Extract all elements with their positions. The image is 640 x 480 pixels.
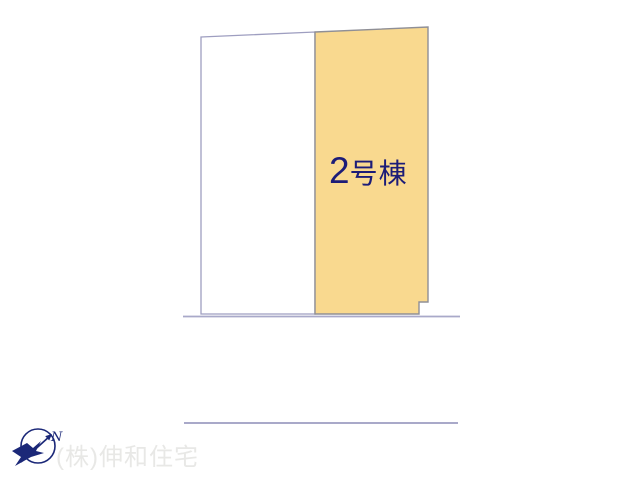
company-watermark: (株)伸和住宅 (56, 445, 199, 471)
parcel-2-label-number: 2 (329, 152, 350, 189)
parcel-2-label-suffix: 号棟 (350, 160, 408, 188)
parcel-2-label: 2 号棟 (329, 152, 408, 189)
site-plan-drawing: N (0, 0, 640, 480)
parcel-left-shape (201, 32, 315, 314)
site-plan-canvas: N 2 号棟 (株)伸和住宅 (0, 0, 640, 480)
compass-north-label: N (50, 430, 63, 445)
